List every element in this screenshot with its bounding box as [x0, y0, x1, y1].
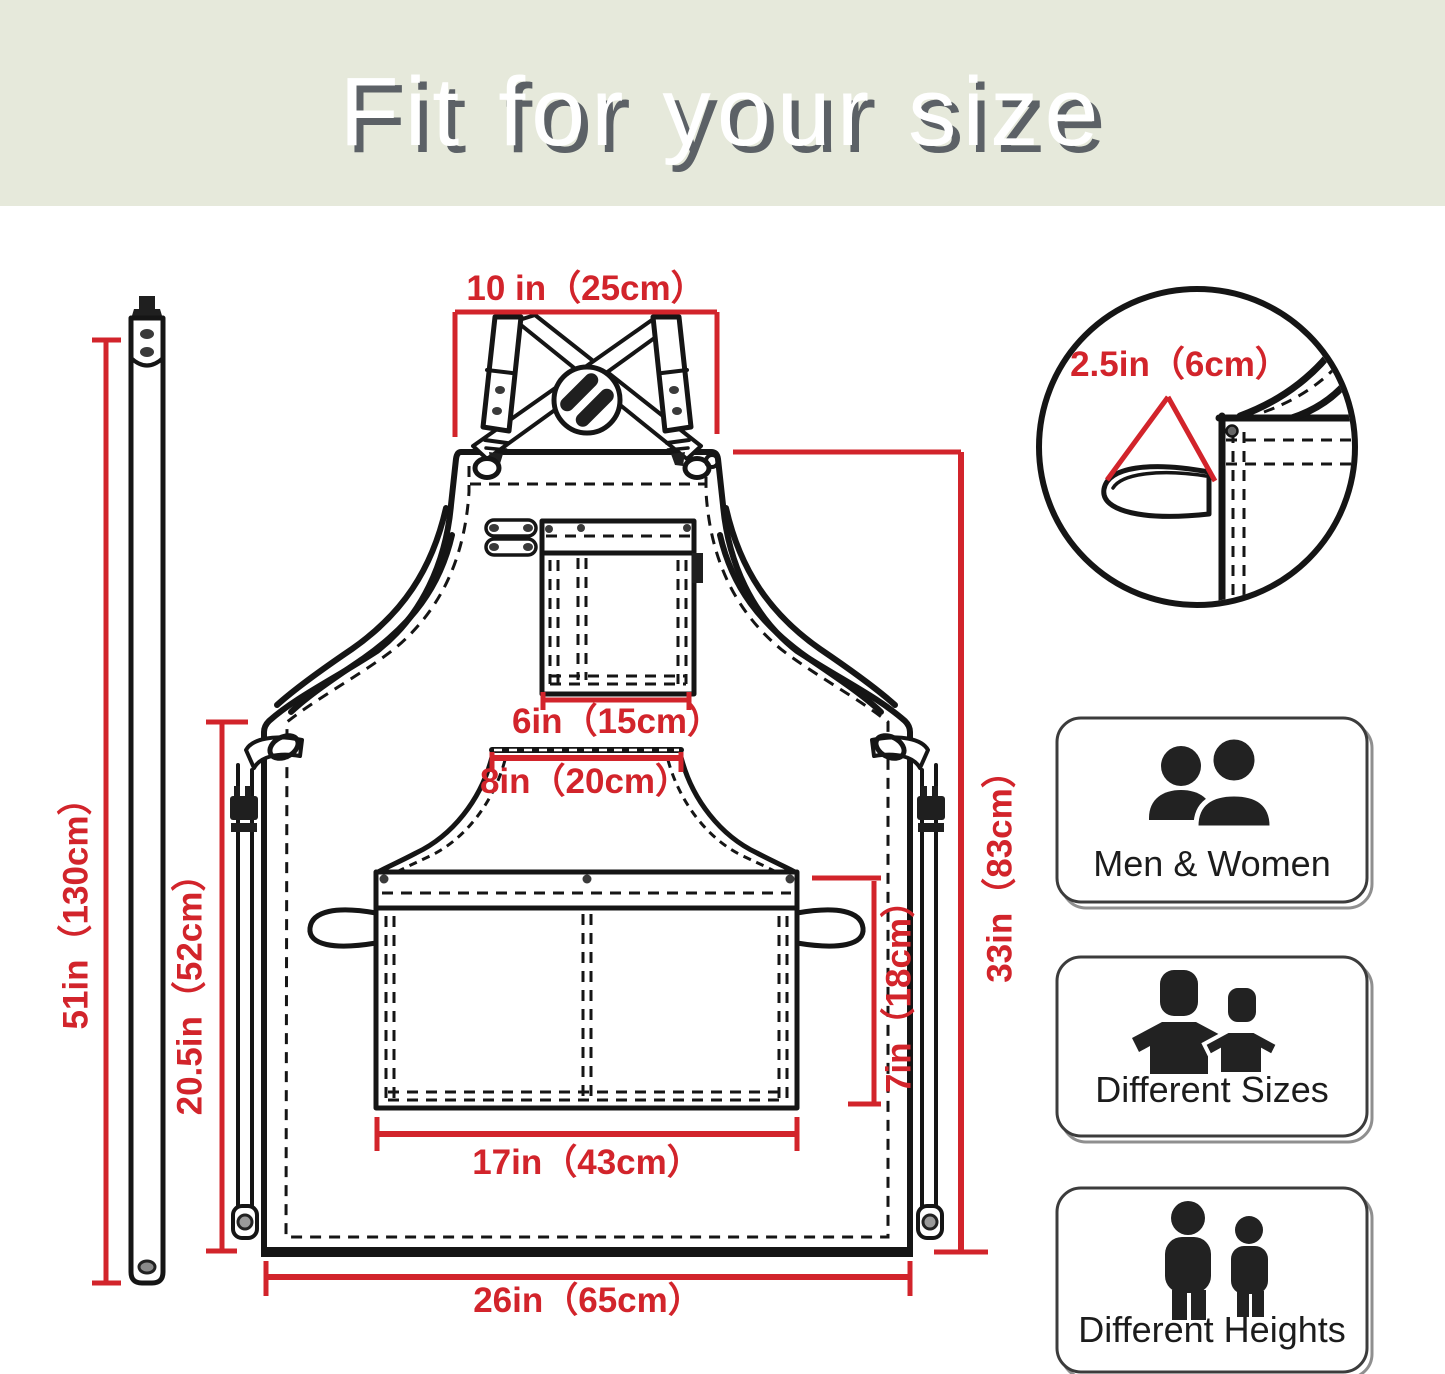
dim-label-neck-strap-width: 10 in（25cm）	[466, 269, 705, 308]
corner-rivet	[1227, 426, 1238, 437]
dim-label-chest-pocket-width: 6in（15cm）	[512, 702, 722, 741]
dim-apron-width: 26in（65cm）	[266, 1261, 910, 1320]
dim-waist-seam-width: 8in（20cm）	[480, 752, 690, 801]
strap-end-rivet	[139, 1261, 155, 1273]
strap-rivet	[140, 347, 154, 357]
dim-label-side-loop: 2.5in（6cm）	[1070, 345, 1290, 384]
dim-label-waist-seam-width: 8in（20cm）	[480, 762, 690, 801]
dim-label-front-pocket-width: 17in（43cm）	[472, 1143, 702, 1182]
bib-grommet-left	[475, 459, 499, 478]
apron-size-infographic: Fit for your size Fit for your size 51in…	[0, 0, 1445, 1374]
feature-label: Men & Women	[1093, 843, 1330, 884]
strap-hub-logo-icon	[554, 367, 620, 433]
neck-strap-length-diagram: 51in（130cm）	[56, 296, 163, 1283]
strap-top-tab	[139, 296, 155, 311]
dim-label-apron-length: 33in（83cm）	[980, 753, 1019, 983]
page-title: Fit for your size	[340, 57, 1105, 166]
feature-card-men-women: Men & Women	[1057, 718, 1372, 908]
dim-label-side-length: 20.5in（52cm）	[170, 857, 209, 1116]
feature-cards: Men & Women Different Sizes	[1057, 718, 1372, 1374]
header-banner: Fit for your size Fit for your size	[0, 0, 1445, 206]
dim-chest-pocket-width: 6in（15cm）	[512, 692, 722, 741]
dim-label-front-pocket-height: 7in（18cm）	[879, 883, 918, 1093]
brand-tag	[692, 553, 703, 583]
feature-card-different-sizes: Different Sizes	[1057, 957, 1372, 1142]
buckle-right	[917, 786, 945, 832]
dim-label-strap-length: 51in（130cm）	[56, 780, 95, 1029]
chest-pocket	[542, 521, 703, 694]
towel-loop-right	[797, 910, 863, 946]
strap-rivet	[140, 329, 154, 339]
feature-card-different-heights: Different Heights	[1057, 1188, 1372, 1374]
feature-label: Different Heights	[1078, 1309, 1345, 1350]
towel-loop-left	[310, 910, 376, 946]
dim-label-apron-width: 26in（65cm）	[473, 1281, 703, 1320]
loop-detail-circle: 2.5in（6cm）	[1039, 289, 1358, 612]
apron-diagram: 10 in（25cm） 20.5in（52cm） 6in（15cm） 8in（2…	[170, 269, 1019, 1320]
pen-holder-slots	[486, 520, 536, 555]
front-pocket	[310, 872, 863, 1108]
dim-line-strap-length	[92, 340, 121, 1283]
feature-label: Different Sizes	[1095, 1069, 1328, 1110]
strap-body	[131, 318, 163, 1283]
